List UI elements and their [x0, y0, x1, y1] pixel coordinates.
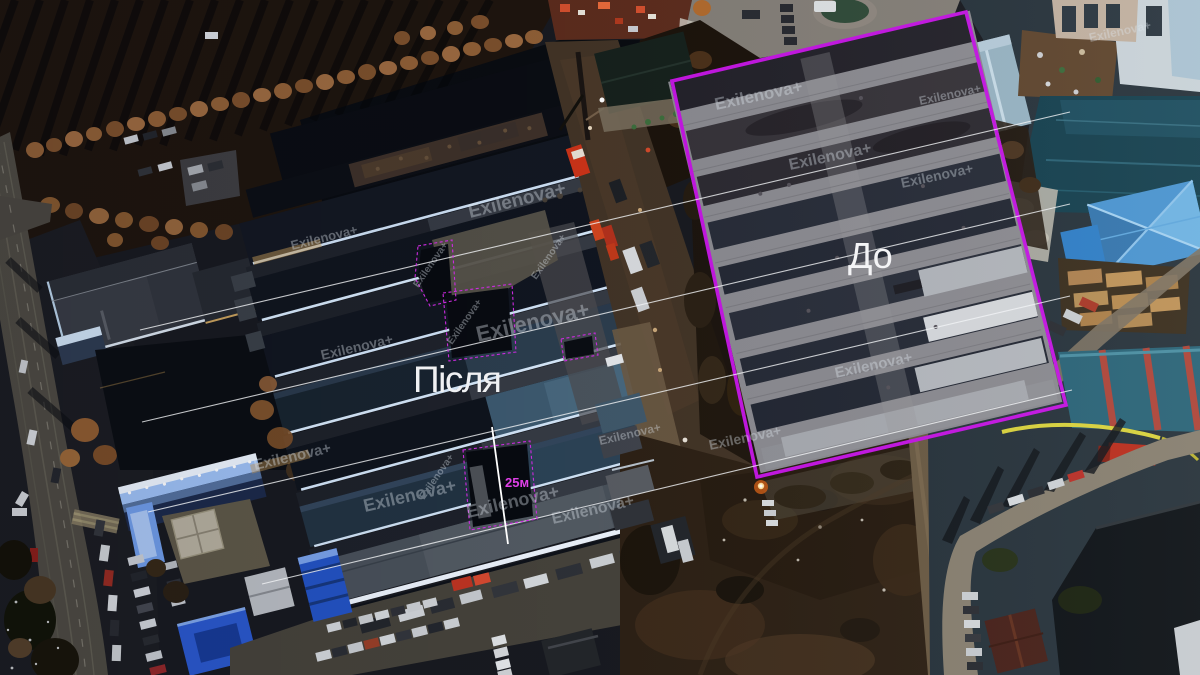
svg-text:До: До: [848, 235, 893, 276]
svg-text:Після: Після: [413, 359, 500, 400]
